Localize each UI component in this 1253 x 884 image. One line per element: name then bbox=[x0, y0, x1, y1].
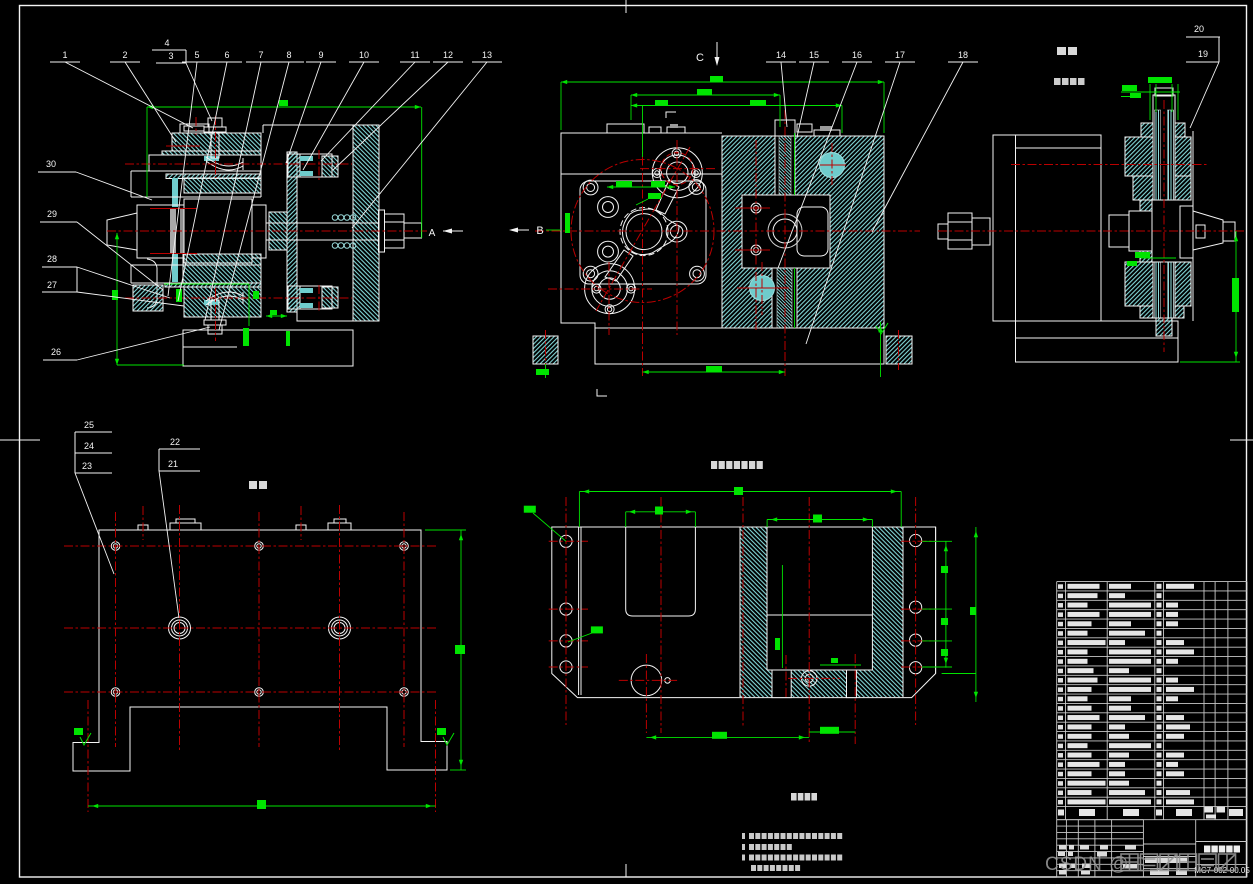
svg-text:4: 4 bbox=[164, 38, 169, 48]
svg-text:13: 13 bbox=[482, 50, 492, 60]
svg-text:8: 8 bbox=[286, 50, 291, 60]
svg-text:14: 14 bbox=[776, 50, 786, 60]
svg-text:26: 26 bbox=[51, 347, 61, 357]
svg-text:24: 24 bbox=[84, 441, 94, 451]
svg-text:B: B bbox=[536, 225, 543, 237]
svg-text:30: 30 bbox=[46, 159, 56, 169]
svg-text:10: 10 bbox=[359, 50, 369, 60]
svg-text:6: 6 bbox=[224, 50, 229, 60]
svg-text:CSDN @: CSDN @ bbox=[1045, 854, 1129, 875]
svg-text:3: 3 bbox=[168, 51, 173, 61]
svg-text:21: 21 bbox=[168, 459, 178, 469]
svg-text:22: 22 bbox=[170, 437, 180, 447]
svg-text:2: 2 bbox=[122, 50, 127, 60]
svg-text:18: 18 bbox=[958, 50, 968, 60]
svg-text:1: 1 bbox=[62, 50, 67, 60]
svg-text:16: 16 bbox=[852, 50, 862, 60]
svg-text:25: 25 bbox=[84, 420, 94, 430]
svg-text:20: 20 bbox=[1194, 24, 1204, 34]
svg-text:9: 9 bbox=[318, 50, 323, 60]
svg-text:28: 28 bbox=[47, 254, 57, 264]
svg-text:5: 5 bbox=[194, 50, 199, 60]
svg-text:11: 11 bbox=[410, 50, 419, 60]
svg-text:C: C bbox=[696, 52, 704, 64]
svg-text:29: 29 bbox=[47, 209, 57, 219]
svg-text:23: 23 bbox=[82, 461, 92, 471]
svg-text:A: A bbox=[429, 228, 436, 239]
svg-text:19: 19 bbox=[1198, 49, 1208, 59]
svg-text:27: 27 bbox=[47, 280, 57, 290]
svg-text:12: 12 bbox=[443, 50, 453, 60]
svg-text:7: 7 bbox=[258, 50, 263, 60]
svg-text:15: 15 bbox=[809, 50, 819, 60]
svg-text:17: 17 bbox=[895, 50, 905, 60]
